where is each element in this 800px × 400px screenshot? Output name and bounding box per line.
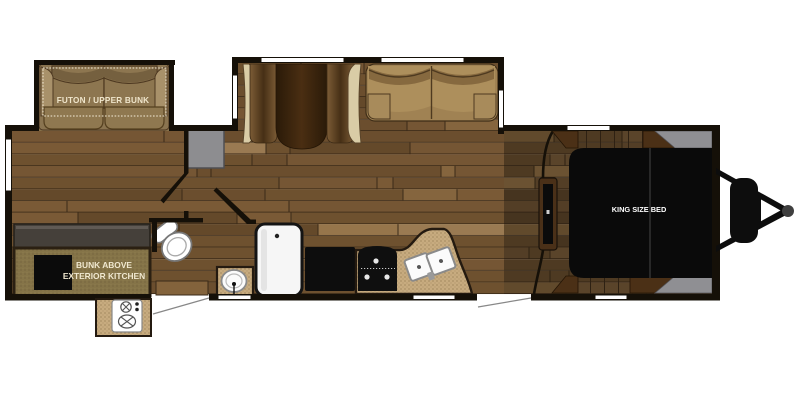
svg-text:EXTERIOR KITCHEN: EXTERIOR KITCHEN [63, 271, 145, 281]
svg-text:KING SIZE BED: KING SIZE BED [612, 205, 667, 214]
svg-text:FUTON / UPPER BUNK: FUTON / UPPER BUNK [57, 96, 150, 105]
svg-text:BUNK ABOVE: BUNK ABOVE [76, 260, 132, 270]
